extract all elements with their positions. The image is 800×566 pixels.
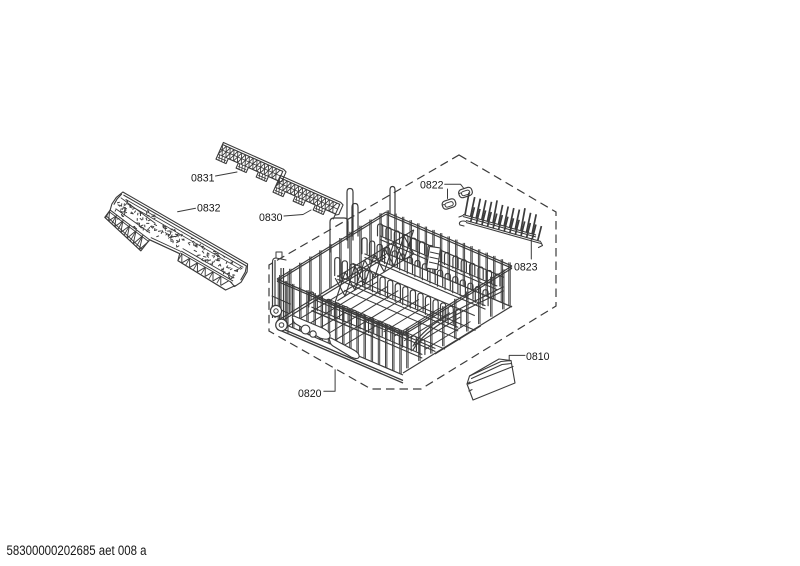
svg-text:0820: 0820	[298, 388, 322, 400]
svg-text:58300000202685 aet 008 a: 58300000202685 aet 008 a	[7, 543, 147, 558]
svg-text:0830: 0830	[259, 212, 283, 224]
svg-text:0810: 0810	[526, 351, 550, 363]
svg-text:0831: 0831	[191, 173, 215, 185]
svg-text:0832: 0832	[197, 203, 221, 215]
svg-text:0822: 0822	[420, 180, 444, 192]
svg-text:0823: 0823	[514, 262, 538, 274]
